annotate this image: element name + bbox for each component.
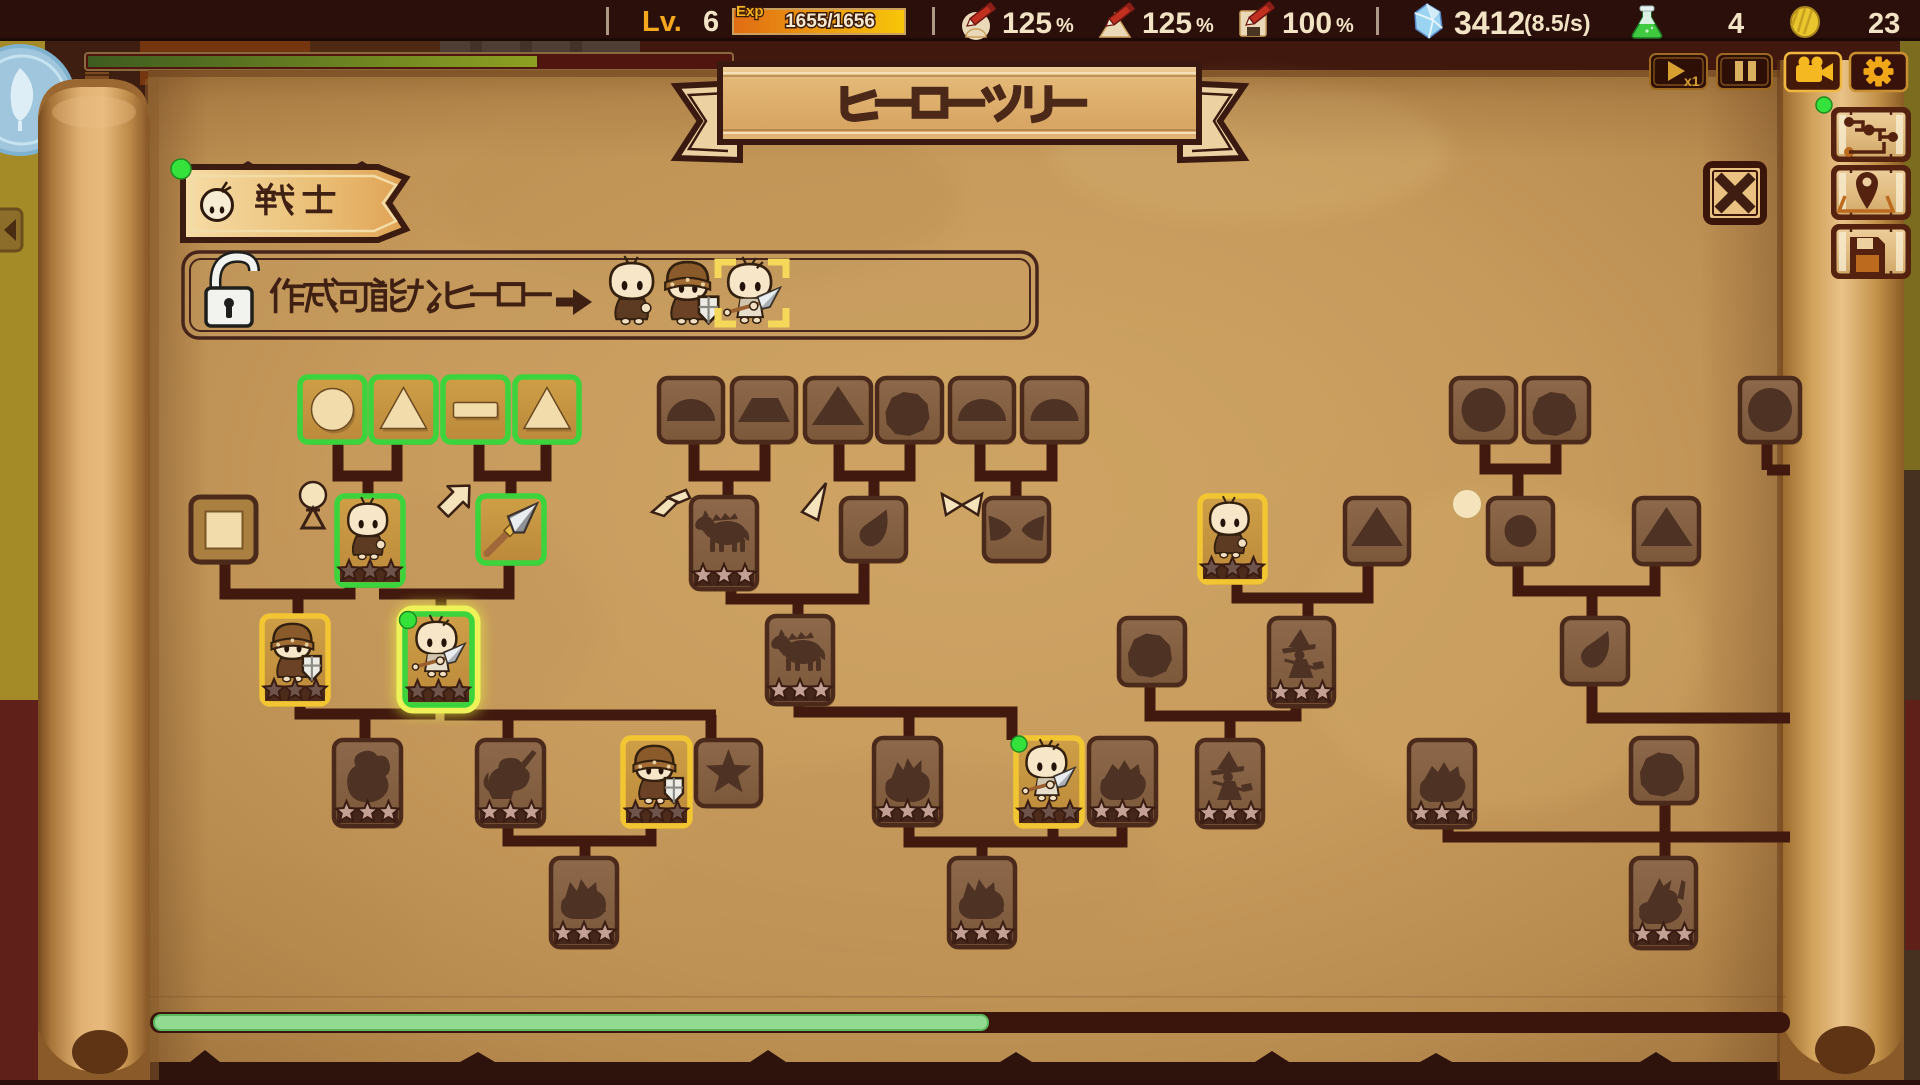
svg-text:3412: 3412: [1454, 5, 1525, 41]
svg-text:1655/1656: 1655/1656: [785, 11, 875, 32]
svg-text:%: %: [1056, 15, 1074, 37]
svg-text:4: 4: [1728, 8, 1744, 40]
svg-text:Lv.: Lv.: [642, 6, 682, 38]
svg-text:(8.5/s): (8.5/s): [1524, 10, 1590, 36]
svg-text:x1: x1: [1684, 73, 1700, 89]
svg-text:125: 125: [1002, 7, 1052, 40]
svg-text:23: 23: [1868, 8, 1900, 40]
svg-text:Exp: Exp: [736, 3, 764, 20]
svg-text:125: 125: [1142, 7, 1192, 40]
svg-text:100: 100: [1282, 7, 1332, 40]
svg-text:%: %: [1336, 15, 1354, 37]
svg-text:6: 6: [703, 6, 719, 38]
svg-text:%: %: [1196, 15, 1214, 37]
